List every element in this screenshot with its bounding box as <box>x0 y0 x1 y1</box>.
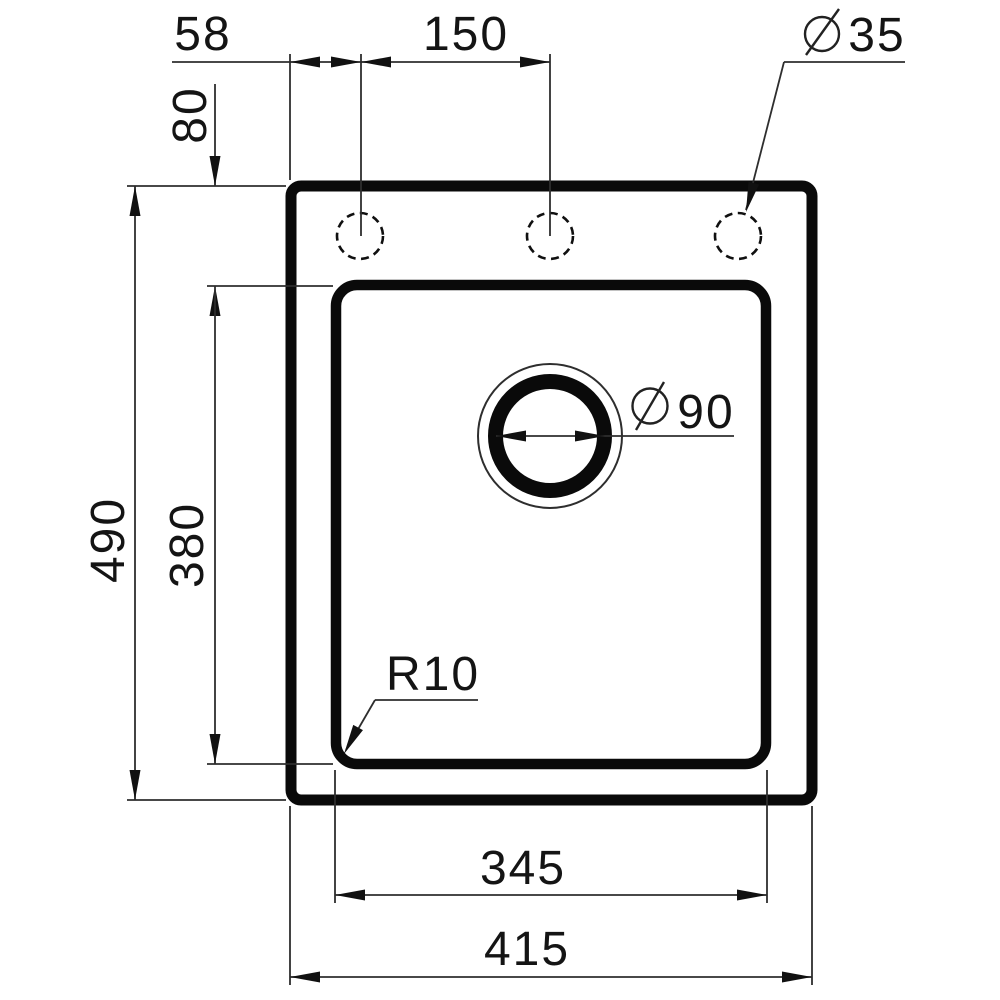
dim-bowl-height: 380 <box>161 286 333 764</box>
diameter-symbol-icon <box>633 382 668 430</box>
dim-bowl-height-label: 380 <box>161 502 214 588</box>
arrowhead <box>290 972 320 983</box>
faucet-holes <box>337 213 761 259</box>
arrowhead <box>290 57 320 68</box>
faucet-hole-right <box>715 213 761 259</box>
dim-hole-spacing-label: 150 <box>423 8 509 61</box>
arrowhead <box>130 186 141 216</box>
corner-radius-label: R10 <box>386 648 480 701</box>
arrowhead <box>782 972 812 983</box>
arrowhead <box>210 156 221 186</box>
dim-top-inset: 80 <box>164 84 333 316</box>
arrowhead <box>210 734 221 764</box>
arrowhead <box>335 890 365 901</box>
dim-bowl-width-label: 345 <box>480 842 566 895</box>
dim-top-inset-label: 80 <box>164 86 217 143</box>
arrowhead <box>737 890 767 901</box>
dim-overall-width-label: 415 <box>484 923 570 976</box>
faucet-hole-left <box>337 213 383 259</box>
arrowhead <box>130 770 141 800</box>
drawing-canvas: 58 150 35 80 380 <box>0 0 1000 1000</box>
dim-hole-spacing: 150 <box>361 8 550 236</box>
dim-hole-offset-label: 58 <box>174 8 231 61</box>
faucet-hole-diameter-label: 35 <box>848 9 905 62</box>
arrowhead <box>331 57 361 68</box>
drain-diameter-label: 90 <box>677 386 734 439</box>
dim-overall-height-label: 490 <box>82 497 135 583</box>
callout-corner-radius: R10 <box>339 648 480 757</box>
diameter-symbol-icon <box>805 9 839 55</box>
arrowhead <box>520 57 550 68</box>
sink-dimension-drawing: 58 150 35 80 380 <box>0 0 1000 1000</box>
dim-bowl-width: 345 <box>335 770 767 903</box>
arrowhead <box>361 57 391 68</box>
dim-overall-height: 490 <box>82 186 286 800</box>
